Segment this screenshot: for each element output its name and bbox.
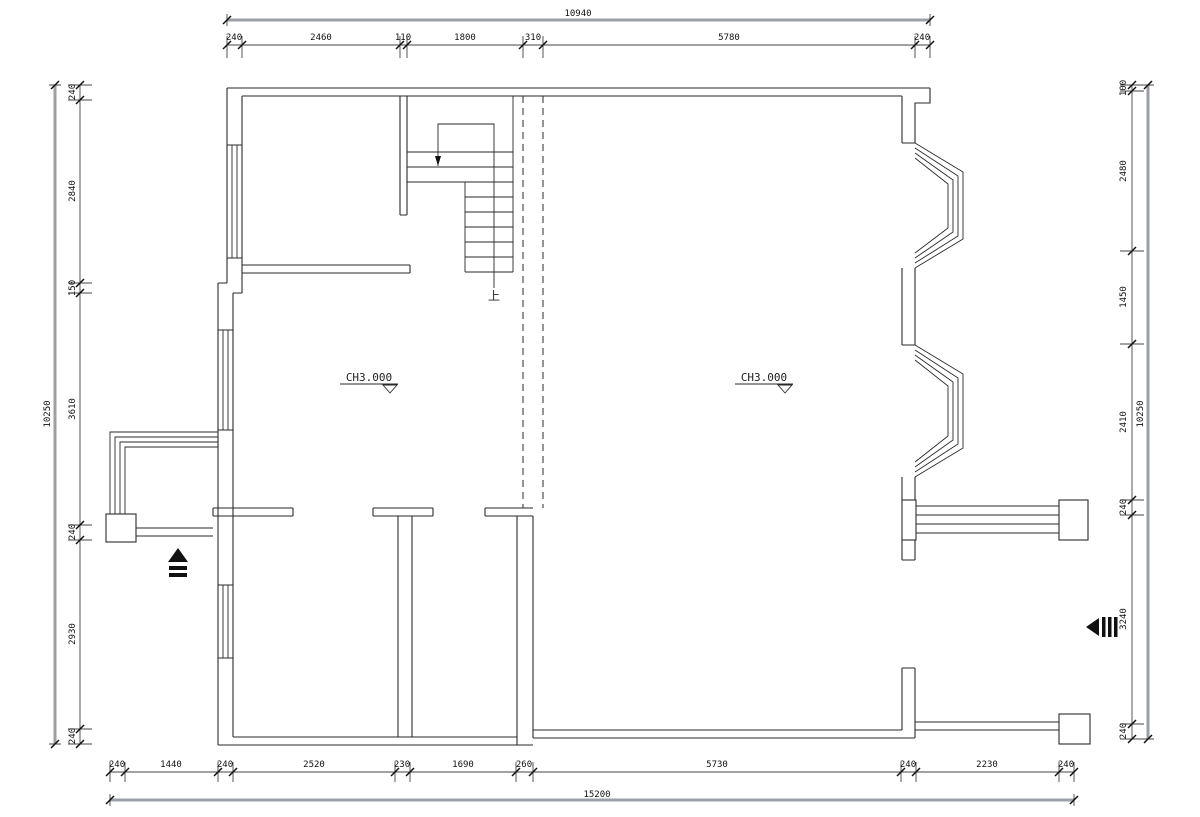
dim-label: 3240	[1119, 608, 1129, 630]
stair-direction-arrowhead	[435, 156, 441, 166]
dim-label: 240	[109, 760, 125, 770]
dim-label: 2930	[68, 623, 78, 645]
elevation-triangle-left	[383, 385, 397, 393]
bay-window-lower-glazing	[915, 345, 963, 477]
dim-label: 2410	[1119, 411, 1129, 433]
dim-label: 230	[394, 760, 410, 770]
stair-treads	[407, 96, 513, 272]
dim-label: 110	[395, 33, 411, 43]
section-arrow-icon	[1086, 617, 1118, 637]
right-window-arm	[902, 500, 1088, 540]
entrance-arrow-bar	[169, 566, 187, 570]
dim-label: 240	[914, 33, 930, 43]
dim-label: 240	[1119, 499, 1129, 515]
dim-label: 310	[525, 33, 541, 43]
elevation-label-right: CH3.000	[735, 371, 793, 393]
bay-window-upper-glazing	[915, 143, 963, 268]
dimension-chain-right: 10250 100 2480 1450 2410 240 3240 240	[1119, 80, 1154, 743]
elevation-text-left: CH3.000	[346, 371, 392, 384]
dim-label: 1450	[1119, 286, 1129, 308]
dim-label: 2460	[310, 33, 332, 43]
dim-label: 150	[68, 280, 78, 296]
dim-label: 240	[226, 33, 242, 43]
dim-label: 5780	[718, 33, 740, 43]
section-arrow-bar	[1114, 617, 1118, 637]
dimension-chain-left: 10250 240 2840 150 3610 240 2930 240	[43, 81, 92, 748]
dim-label: 1690	[452, 760, 474, 770]
dim-label: 2840	[68, 180, 78, 202]
dim-label: 1800	[454, 33, 476, 43]
dim-label: 240	[68, 728, 78, 744]
dim-label: 15200	[583, 790, 610, 800]
dim-label: 3610	[68, 398, 78, 420]
section-arrow-bar	[1108, 617, 1112, 637]
right-window-arm-glazing	[916, 506, 1059, 533]
dim-label: 2480	[1119, 160, 1129, 182]
bottom-right-pier	[1059, 714, 1090, 744]
dim-label: 2520	[303, 760, 325, 770]
elevation-label-left: CH3.000	[340, 371, 398, 393]
windows-left-wall	[218, 145, 242, 658]
dim-label: 240	[68, 524, 78, 540]
dim-label: 5730	[706, 760, 728, 770]
walls	[213, 88, 1059, 745]
right-window-arm-end-block	[1059, 500, 1088, 540]
dim-label: 240	[1119, 723, 1129, 739]
dim-label: 100	[1119, 80, 1129, 96]
dim-label: 240	[900, 760, 916, 770]
dimension-chain-top: 10940 240 2460 110 1800 310 5780 240	[223, 9, 934, 58]
balcony-glazing	[110, 432, 218, 536]
entrance-arrow-bar	[169, 573, 187, 577]
section-arrow-triangle	[1086, 618, 1099, 636]
stair-direction-line	[438, 124, 494, 288]
elevation-text-right: CH3.000	[741, 371, 787, 384]
section-arrow-bar	[1102, 617, 1106, 637]
dim-label: 240	[1058, 760, 1074, 770]
wall-lines	[213, 88, 1059, 745]
dim-label: 240	[217, 760, 233, 770]
beam-dashed-lines	[523, 96, 543, 508]
bay-window-lower	[915, 345, 963, 477]
floor-plan-drawing: 上 CH3.000 CH3.000 10940 240 2460 110 180…	[0, 0, 1200, 817]
dim-label: 240	[68, 84, 78, 100]
dim-label: 1440	[160, 760, 182, 770]
elevation-triangle-right	[778, 385, 792, 393]
stairs: 上	[407, 96, 513, 303]
balcony	[106, 432, 218, 542]
dim-label: 10250	[1136, 400, 1146, 427]
bay-window-upper	[915, 143, 963, 268]
dim-label: 10250	[43, 400, 53, 427]
window-glazing-lines	[218, 145, 242, 658]
entrance-arrow-icon	[168, 548, 188, 577]
floor-plan-page: 上 CH3.000 CH3.000 10940 240 2460 110 180…	[0, 0, 1200, 817]
dimension-chain-bottom: 15200 240 1440 240 2520 230 1690 260 573…	[106, 760, 1078, 806]
dim-label: 10940	[564, 9, 591, 19]
dim-label: 260	[516, 760, 532, 770]
stairs-up-label: 上	[488, 289, 500, 303]
entrance-arrow-triangle	[168, 548, 188, 562]
dim-label: 2230	[976, 760, 998, 770]
right-window-arm-pier	[902, 500, 916, 540]
balcony-corner-block	[106, 514, 136, 542]
